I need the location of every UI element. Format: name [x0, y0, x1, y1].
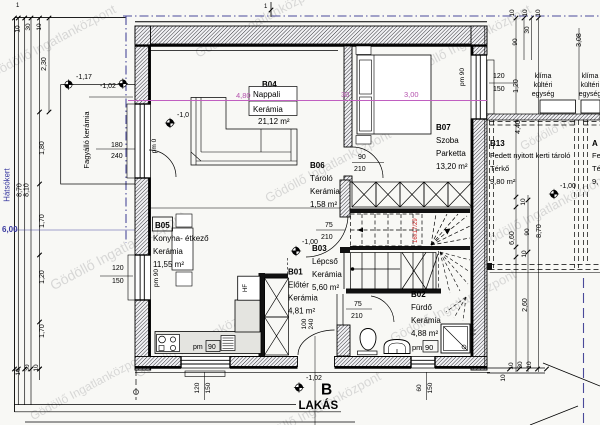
svg-text:21,12 m²: 21,12 m²	[258, 117, 290, 126]
svg-text:10: 10	[33, 364, 40, 372]
svg-text:30: 30	[524, 26, 531, 34]
svg-text:10: 10	[15, 368, 22, 376]
svg-text:Kerámia: Kerámia	[411, 316, 441, 325]
svg-text:kültéri: kültéri	[534, 82, 553, 89]
svg-text:6,00: 6,00	[2, 225, 18, 234]
svg-text:3,00: 3,00	[404, 90, 419, 99]
svg-text:B03: B03	[312, 244, 327, 253]
svg-text:13,20 m²: 13,20 m²	[436, 162, 468, 171]
svg-text:11,55 m²: 11,55 m²	[153, 260, 184, 269]
svg-text:16x17/29: 16x17/29	[413, 218, 419, 243]
svg-text:9,80 m²: 9,80 m²	[490, 177, 516, 186]
svg-text:10: 10	[522, 9, 529, 17]
svg-text:klíma: klíma	[582, 73, 599, 80]
svg-text:150: 150	[205, 382, 212, 393]
svg-text:Előtér: Előtér	[288, 281, 309, 290]
svg-text:120: 120	[493, 73, 505, 80]
svg-text:8,10: 8,10	[24, 183, 31, 197]
svg-text:B01: B01	[288, 268, 303, 277]
svg-text:180: 180	[111, 142, 123, 149]
svg-text:HF: HF	[243, 284, 249, 292]
svg-text:pm 90: pm 90	[459, 68, 466, 86]
svg-text:Fe: Fe	[592, 151, 600, 160]
svg-text:klíma: klíma	[535, 73, 552, 80]
svg-text:B02: B02	[411, 290, 426, 299]
svg-text:120: 120	[112, 265, 124, 272]
svg-text:Fagyálló kerámia: Fagyálló kerámia	[82, 111, 91, 169]
svg-text:90: 90	[425, 343, 433, 352]
svg-text:90: 90	[358, 154, 366, 161]
svg-text:90: 90	[208, 344, 216, 351]
svg-text:B13: B13	[490, 139, 505, 148]
svg-text:LAKÁS: LAKÁS	[299, 399, 339, 412]
svg-text:1,20: 1,20	[513, 79, 520, 93]
svg-text:120: 120	[194, 382, 201, 393]
svg-text:Kerámia: Kerámia	[310, 187, 340, 196]
svg-text:10: 10	[508, 362, 515, 370]
svg-text:75: 75	[325, 222, 333, 229]
svg-text:Hátsókert: Hátsókert	[3, 167, 12, 201]
svg-text:Kerámia: Kerámia	[312, 270, 342, 279]
svg-text:egység: egység	[579, 91, 600, 98]
svg-text:Nappali: Nappali	[253, 90, 280, 99]
svg-text:8,70: 8,70	[17, 183, 24, 197]
svg-text:-1,02: -1,02	[100, 83, 116, 90]
svg-text:4,81 m²: 4,81 m²	[288, 307, 315, 316]
svg-text:Szoba: Szoba	[436, 136, 459, 145]
svg-text:30: 30	[517, 361, 524, 369]
svg-text:Fedett nyitott kerti tároló: Fedett nyitott kerti tároló	[490, 151, 570, 160]
svg-text:-1,17: -1,17	[76, 74, 92, 81]
svg-text:4,88 m²: 4,88 m²	[411, 329, 438, 338]
svg-text:B: B	[321, 382, 332, 399]
svg-text:Kerámia: Kerámia	[153, 247, 183, 256]
svg-text:30: 30	[24, 364, 31, 372]
svg-text:150: 150	[493, 86, 505, 93]
svg-text:-1,0: -1,0	[177, 112, 189, 119]
svg-text:8,70: 8,70	[536, 224, 543, 238]
svg-text:kültéri: kültéri	[581, 82, 600, 89]
svg-text:90: 90	[524, 228, 531, 236]
svg-text:Konyha- étkező: Konyha- étkező	[153, 234, 209, 243]
svg-text:10: 10	[526, 361, 533, 369]
svg-text:10: 10	[36, 23, 43, 31]
svg-text:Fürdő: Fürdő	[411, 303, 432, 312]
svg-text:75: 75	[354, 301, 362, 308]
svg-text:pm 0: pm 0	[151, 138, 158, 153]
svg-text:1,70: 1,70	[39, 324, 46, 338]
svg-text:egység: egység	[532, 91, 555, 98]
svg-text:pm: pm	[412, 343, 422, 352]
svg-text:pm 90: pm 90	[153, 269, 160, 287]
svg-text:9,: 9,	[592, 177, 598, 186]
svg-text:-1,02: -1,02	[306, 375, 322, 382]
svg-text:30: 30	[341, 90, 349, 99]
svg-text:4,80: 4,80	[236, 91, 251, 100]
svg-text:100: 100	[301, 318, 308, 329]
svg-text:1,70: 1,70	[39, 214, 46, 228]
svg-text:240: 240	[111, 153, 123, 160]
svg-text:5,60 m²: 5,60 m²	[312, 283, 339, 292]
svg-text:B05: B05	[155, 221, 170, 230]
svg-text:90: 90	[512, 38, 519, 46]
svg-text:1,20: 1,20	[39, 270, 46, 284]
svg-text:210: 210	[321, 234, 333, 241]
svg-text:Kerámia: Kerámia	[253, 105, 283, 114]
svg-text:150: 150	[112, 278, 124, 285]
svg-text:1,80: 1,80	[39, 141, 46, 155]
svg-text:Parketta: Parketta	[436, 149, 466, 158]
svg-text:10: 10	[500, 374, 507, 382]
svg-text:240: 240	[308, 318, 315, 329]
svg-text:4,40: 4,40	[515, 120, 522, 134]
svg-text:2,30: 2,30	[41, 57, 48, 71]
svg-text:B07: B07	[436, 123, 451, 132]
svg-text:Térkő: Térkő	[490, 164, 509, 173]
svg-text:30: 30	[25, 23, 32, 31]
svg-text:10: 10	[535, 9, 542, 17]
svg-text:Lépcső: Lépcső	[312, 257, 338, 266]
svg-text:1,58 m²: 1,58 m²	[310, 200, 337, 209]
svg-text:150: 150	[427, 382, 434, 393]
svg-text:10: 10	[15, 25, 22, 33]
svg-text:Kerámia: Kerámia	[288, 294, 318, 303]
svg-text:210: 210	[354, 166, 366, 173]
svg-text:-1,00: -1,00	[560, 183, 576, 190]
svg-text:Tároló: Tároló	[310, 174, 333, 183]
svg-text:60: 60	[416, 384, 423, 392]
svg-text:B06: B06	[310, 161, 325, 170]
svg-text:210: 210	[351, 313, 363, 320]
svg-text:pm: pm	[193, 344, 203, 351]
svg-text:A: A	[592, 139, 598, 148]
svg-text:10: 10	[509, 9, 516, 17]
svg-text:3,08: 3,08	[576, 33, 583, 47]
svg-text:6,60: 6,60	[509, 231, 516, 245]
svg-text:Té: Té	[592, 164, 600, 173]
